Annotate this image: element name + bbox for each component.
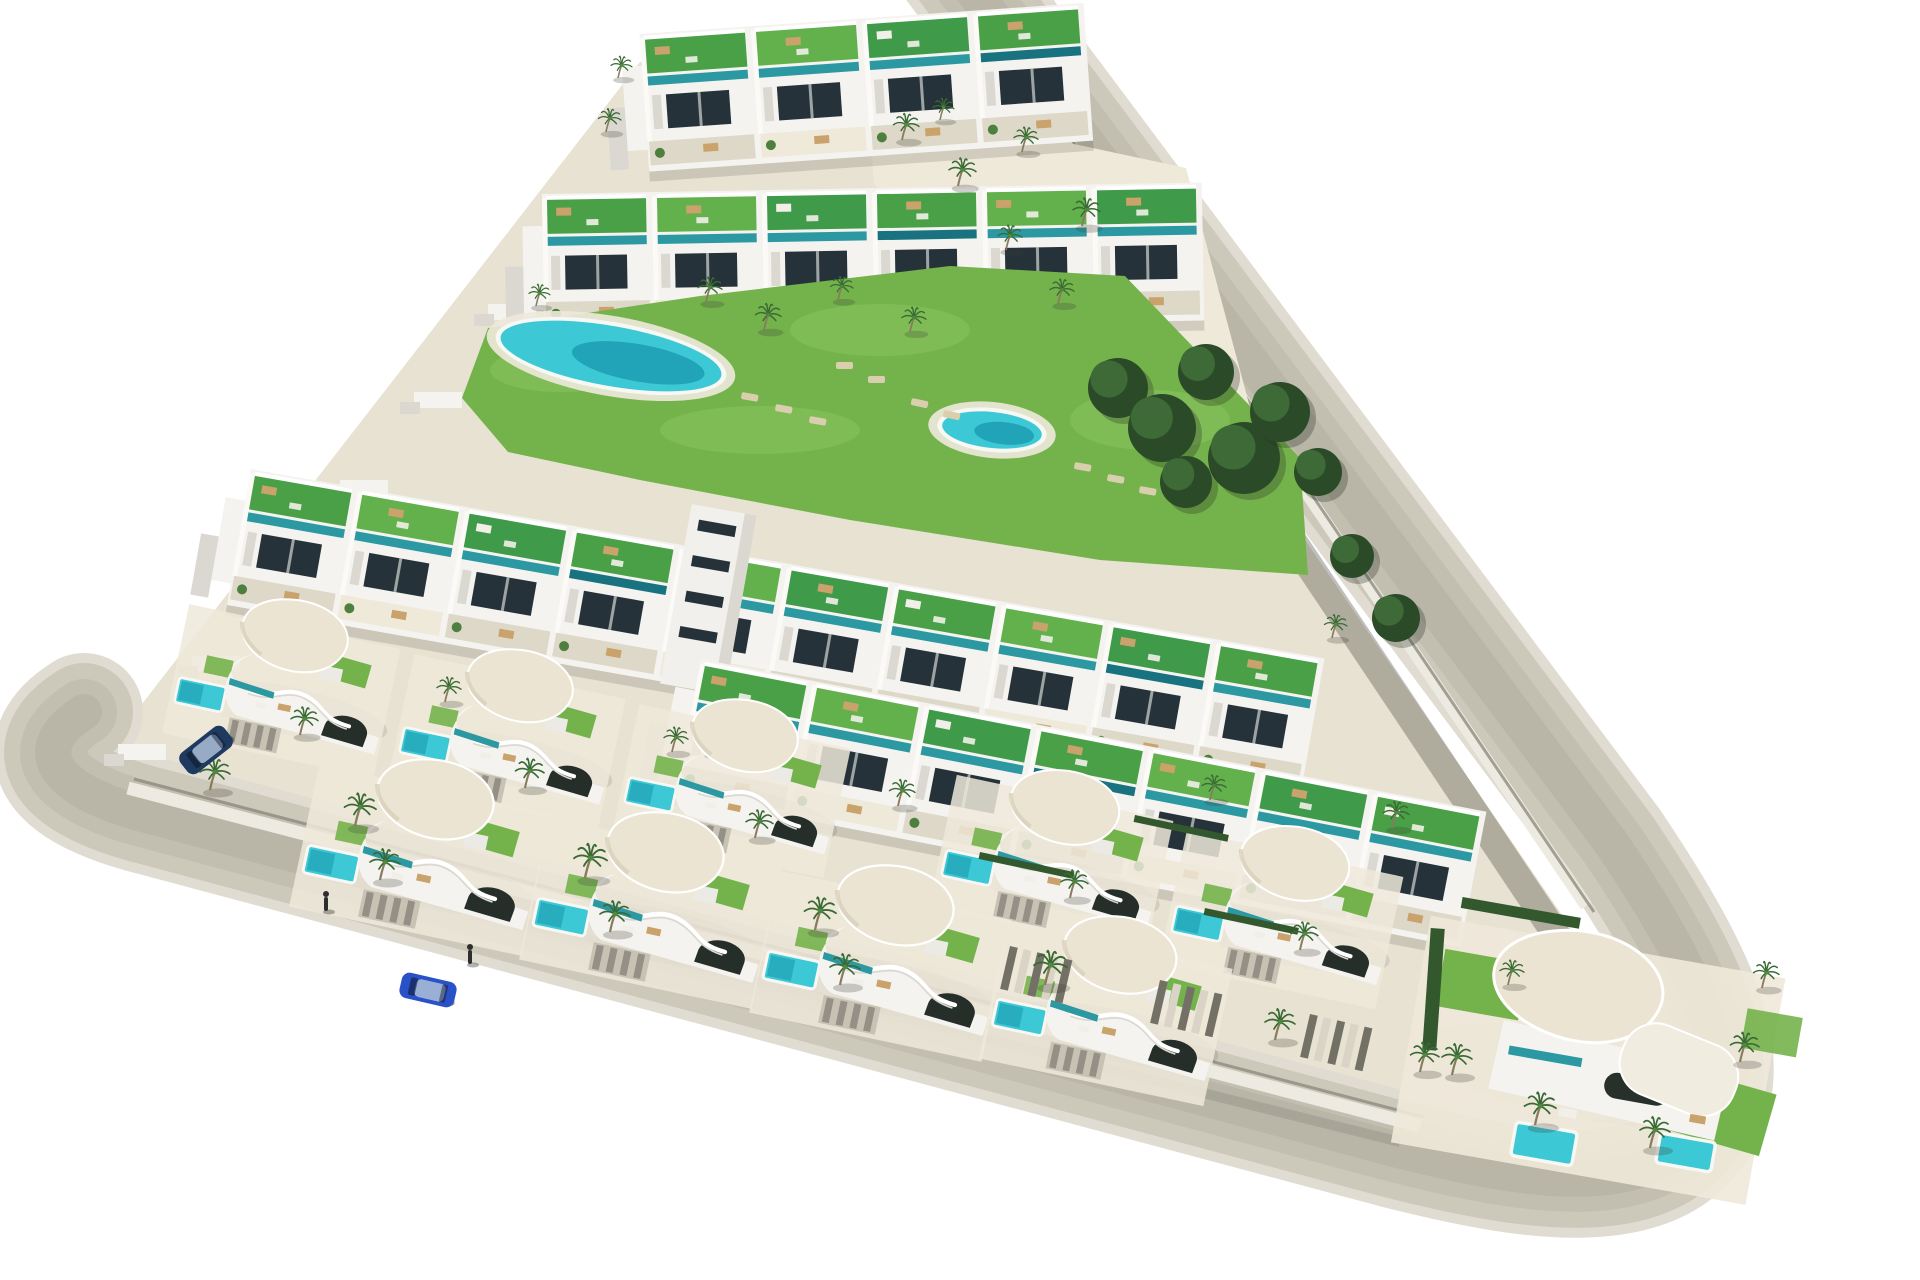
architectural-render-page <box>0 0 1920 1280</box>
aerial-render <box>0 0 1920 1280</box>
car-driving-blue <box>398 971 459 1009</box>
